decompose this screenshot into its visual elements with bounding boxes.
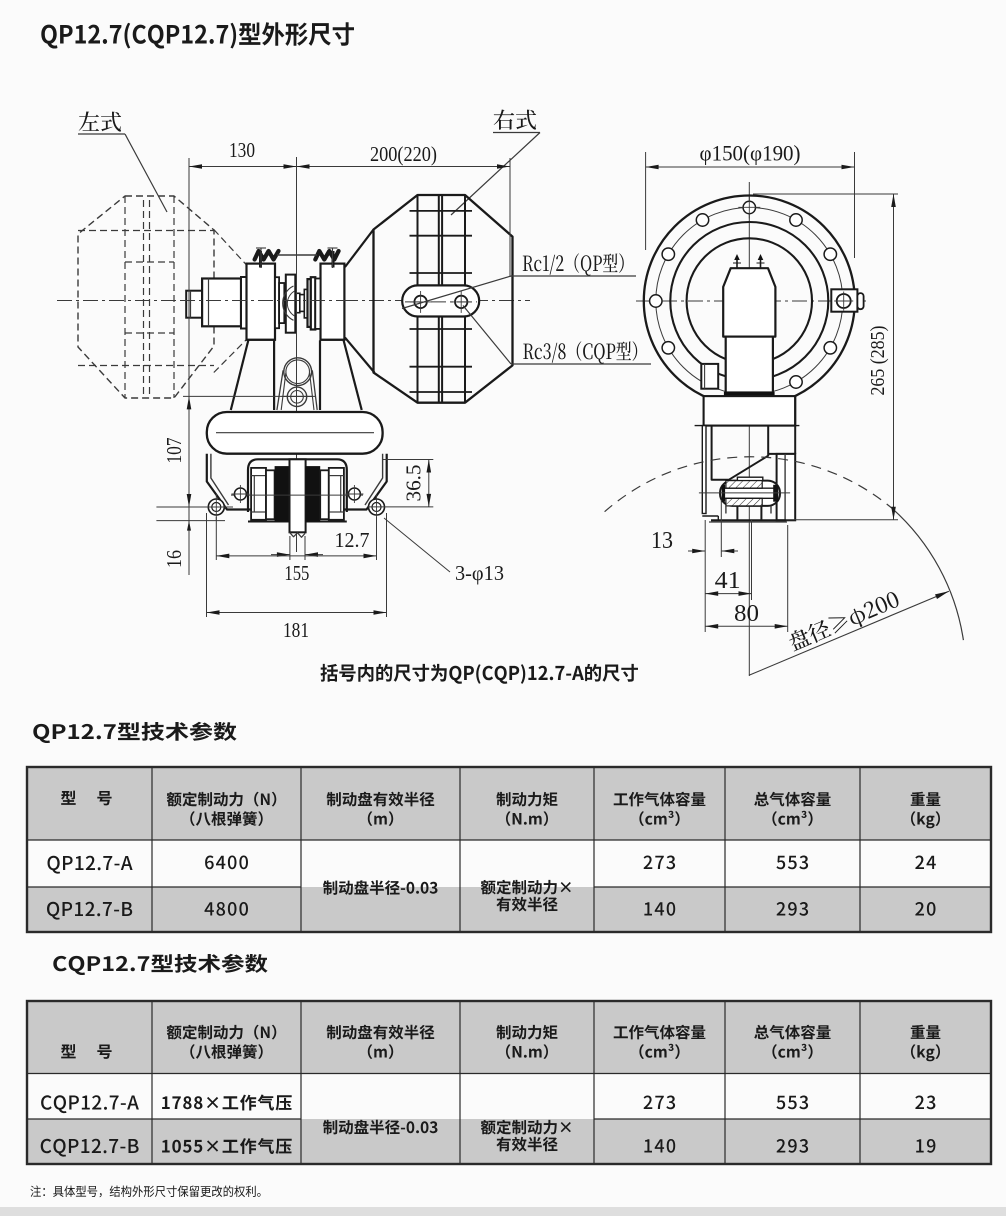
svg-text:130: 130 (229, 138, 255, 162)
svg-text:181: 181 (283, 618, 309, 642)
svg-text:265 (285): 265 (285) (867, 326, 889, 396)
svg-text:φ150(φ190): φ150(φ190) (700, 141, 801, 166)
svg-text:41: 41 (715, 568, 741, 594)
svg-text:13: 13 (651, 528, 673, 554)
svg-text:155: 155 (284, 561, 309, 585)
svg-text:80: 80 (734, 601, 759, 627)
svg-text:16: 16 (162, 550, 186, 568)
svg-text:36.5: 36.5 (402, 465, 426, 502)
svg-text:3-φ13: 3-φ13 (455, 561, 504, 585)
svg-text:200(220): 200(220) (370, 142, 437, 166)
svg-text:107: 107 (162, 438, 186, 464)
svg-text:12.7: 12.7 (335, 528, 370, 552)
